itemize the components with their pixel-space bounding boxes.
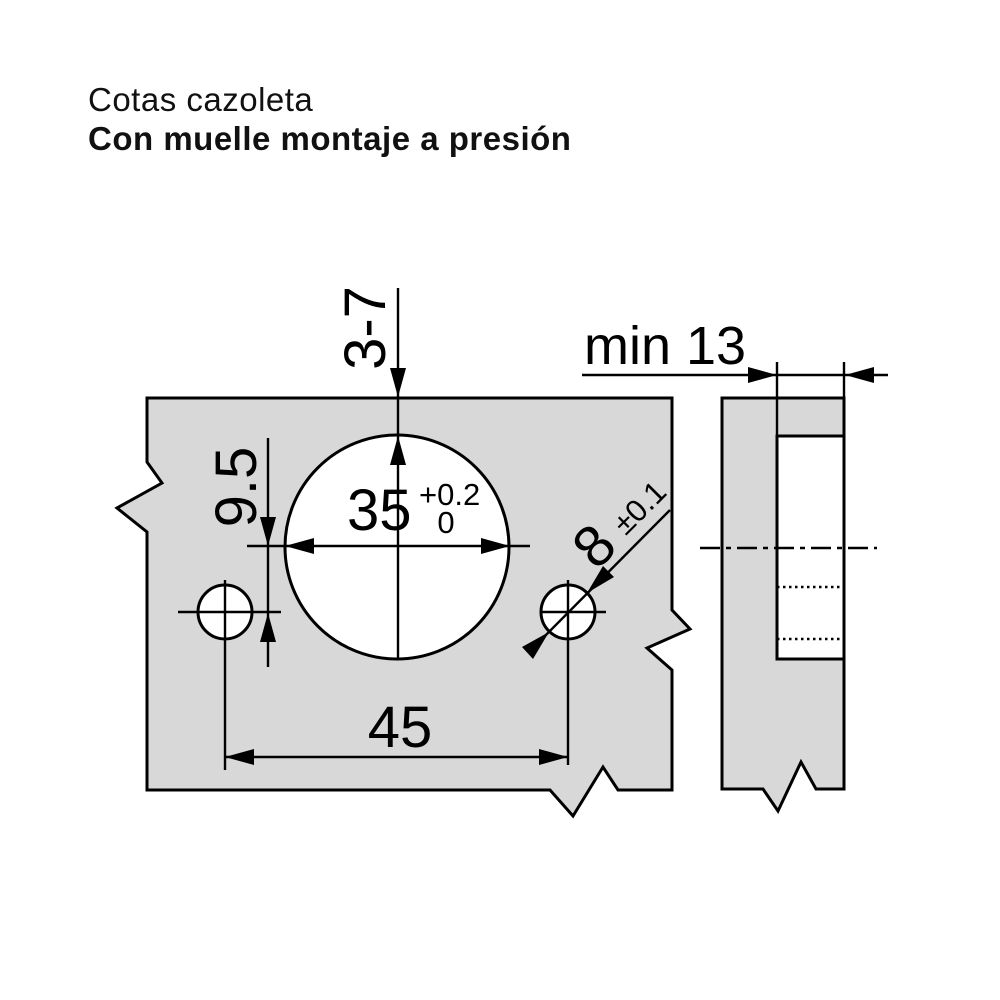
dim-label-45: 45: [368, 695, 433, 760]
arrow-right-icon: [748, 367, 777, 383]
arrow-left-icon: [845, 367, 874, 383]
dim-label-35: 35: [347, 478, 412, 543]
technical-drawing: 3-7 9.5 35 +0.2 0 8 ±0.1: [0, 0, 1000, 1000]
dim-label-min-13: min 13: [584, 316, 746, 376]
dim-label-9-5: 9.5: [204, 447, 269, 528]
arrow-down-icon: [390, 368, 406, 397]
drawing-page: Cotas cazoleta Con muelle montaje a pres…: [0, 0, 1000, 1000]
dim-label-3-7: 3-7: [333, 286, 398, 370]
dim-label-tol-lower: 0: [437, 505, 454, 540]
side-view: [700, 398, 877, 811]
